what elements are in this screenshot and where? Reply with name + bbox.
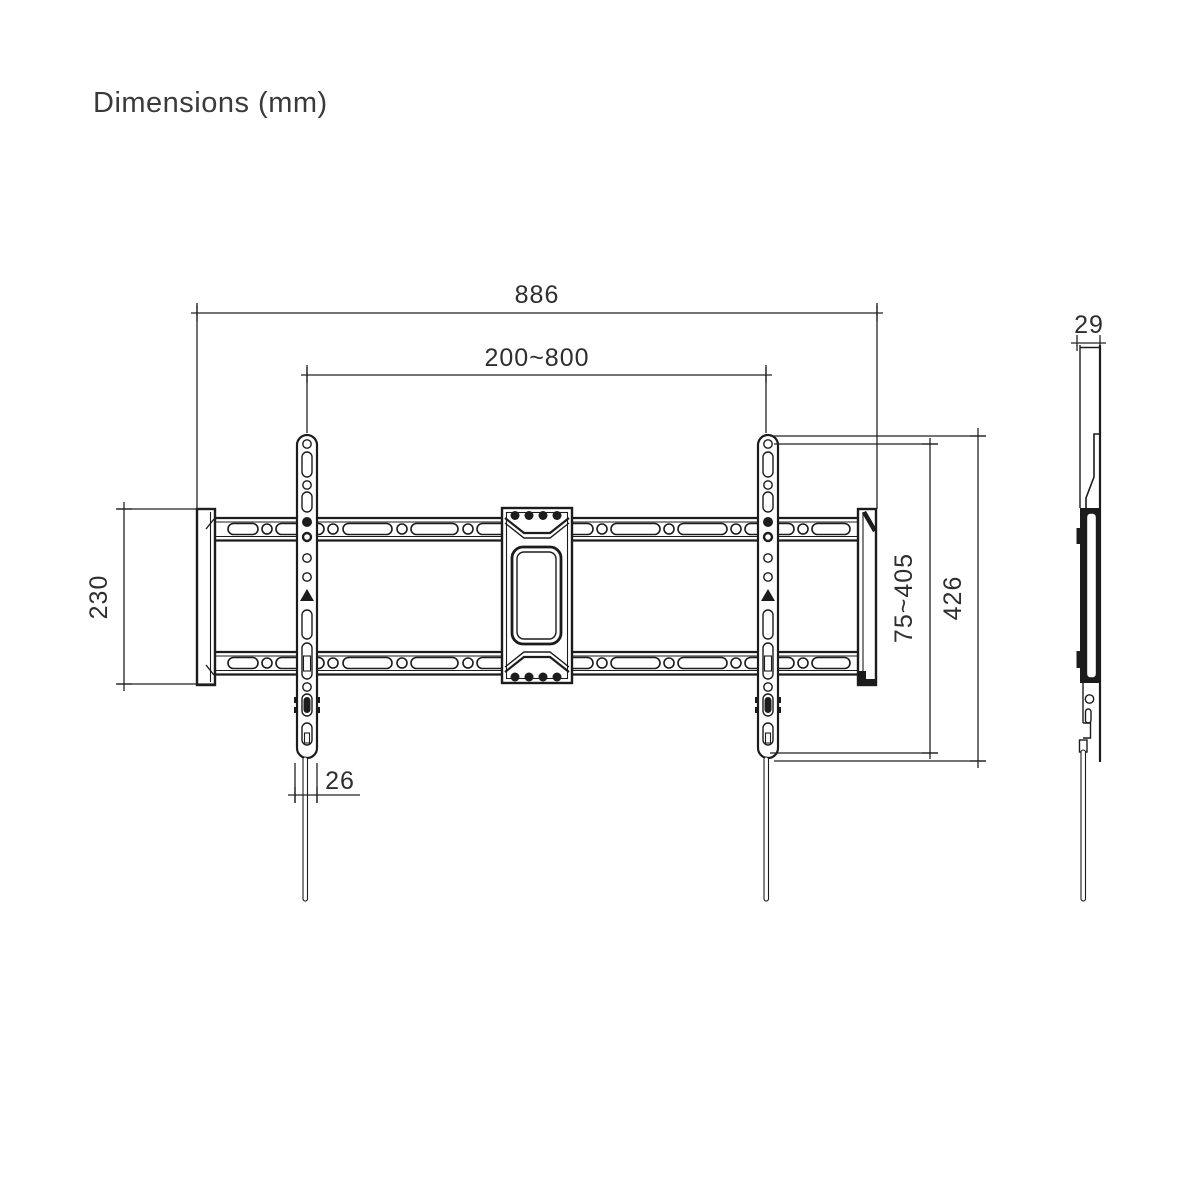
dimension-vesa-height: 75~405 [770,438,938,759]
center-plate [502,508,572,683]
rail-left-end-cap [197,509,215,685]
dimension-label-depth: 29 [1074,311,1104,339]
dimension-label-vesa-height: 75~405 [890,553,918,643]
vesa-strap-left [294,435,320,901]
vesa-strap-right [755,435,781,901]
dimension-label-plate-height: 230 [85,575,113,620]
dimension-label-total-width: 886 [515,281,560,309]
dimension-label-strap-width: 26 [325,767,355,795]
tv-mount-dimension-drawing: 886 200~800 230 75~405 [0,0,1200,1200]
front-view: 886 200~800 230 75~405 [85,281,986,901]
dimension-plate-height: 230 [85,502,215,691]
dimension-label-bracket-height: 426 [939,576,967,621]
page-title: Dimensions (mm) [93,87,328,119]
side-view: 29 [1071,311,1106,901]
dimension-bracket-height: 426 [770,428,986,768]
technical-drawing-page: 886 200~800 230 75~405 [0,0,1200,1200]
dimension-vesa-width: 200~800 [301,344,772,433]
dimension-label-vesa-width: 200~800 [484,344,589,372]
dimension-strap-width: 26 [288,763,360,803]
dimension-total-width: 886 [191,281,883,509]
rail-right-end-cap [857,509,877,686]
side-profile [1077,345,1101,901]
